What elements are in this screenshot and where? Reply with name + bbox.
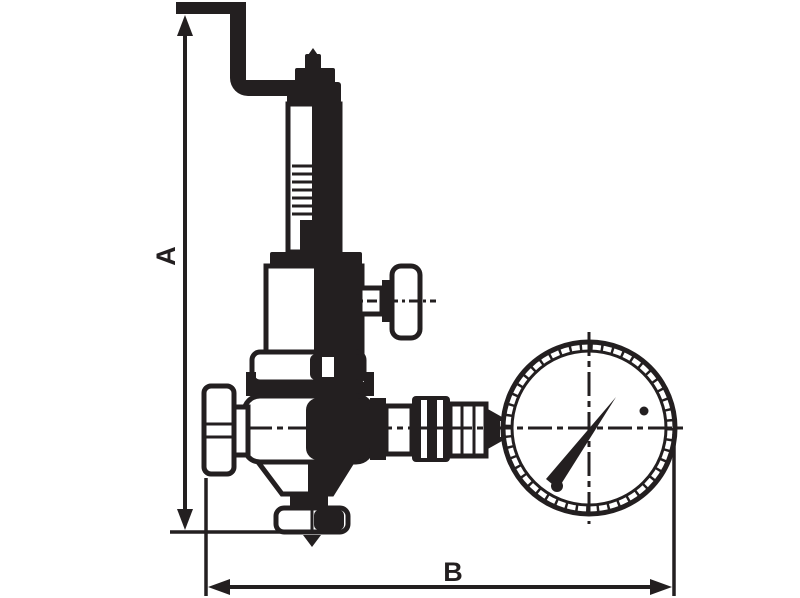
spring-housing [288,104,340,252]
dimension-b-arrow-right [650,579,672,595]
union-nut-shading [310,354,362,380]
outlet-hex-nut [450,404,486,456]
dimension-b-arrow-left [208,579,230,595]
bottom-nut-shading [314,510,344,530]
flow-down-arrow [303,535,321,547]
dimension-a-arrow-bottom [177,509,193,530]
cap-collar [287,82,341,104]
adjusting-nut [300,220,340,252]
vent-pipe-shape [176,2,310,96]
inlet-union-nut [204,386,248,474]
dimension-a-label: A [151,246,181,266]
body-union-nut [252,352,364,382]
bottom-outlet-nut [276,508,348,547]
dial-stop-pin [640,407,649,416]
valve-body [244,372,374,510]
valve-technical-diagram: A B [0,0,800,598]
vent-pipe [176,2,310,96]
union-nut-facet [322,357,334,377]
dimension-b-label: B [443,557,463,587]
inlet-nut-outline [204,386,234,474]
thread-hatching [292,166,336,214]
bonnet-shading [314,268,360,350]
dimension-a-arrow-top [177,15,193,36]
spindle-nub [305,54,321,70]
spindle-cap [287,48,341,104]
diagram-canvas: A B [0,0,800,598]
needle-counterweight [551,480,563,492]
cap-top [295,68,335,84]
outlet-cylinder [386,406,412,454]
